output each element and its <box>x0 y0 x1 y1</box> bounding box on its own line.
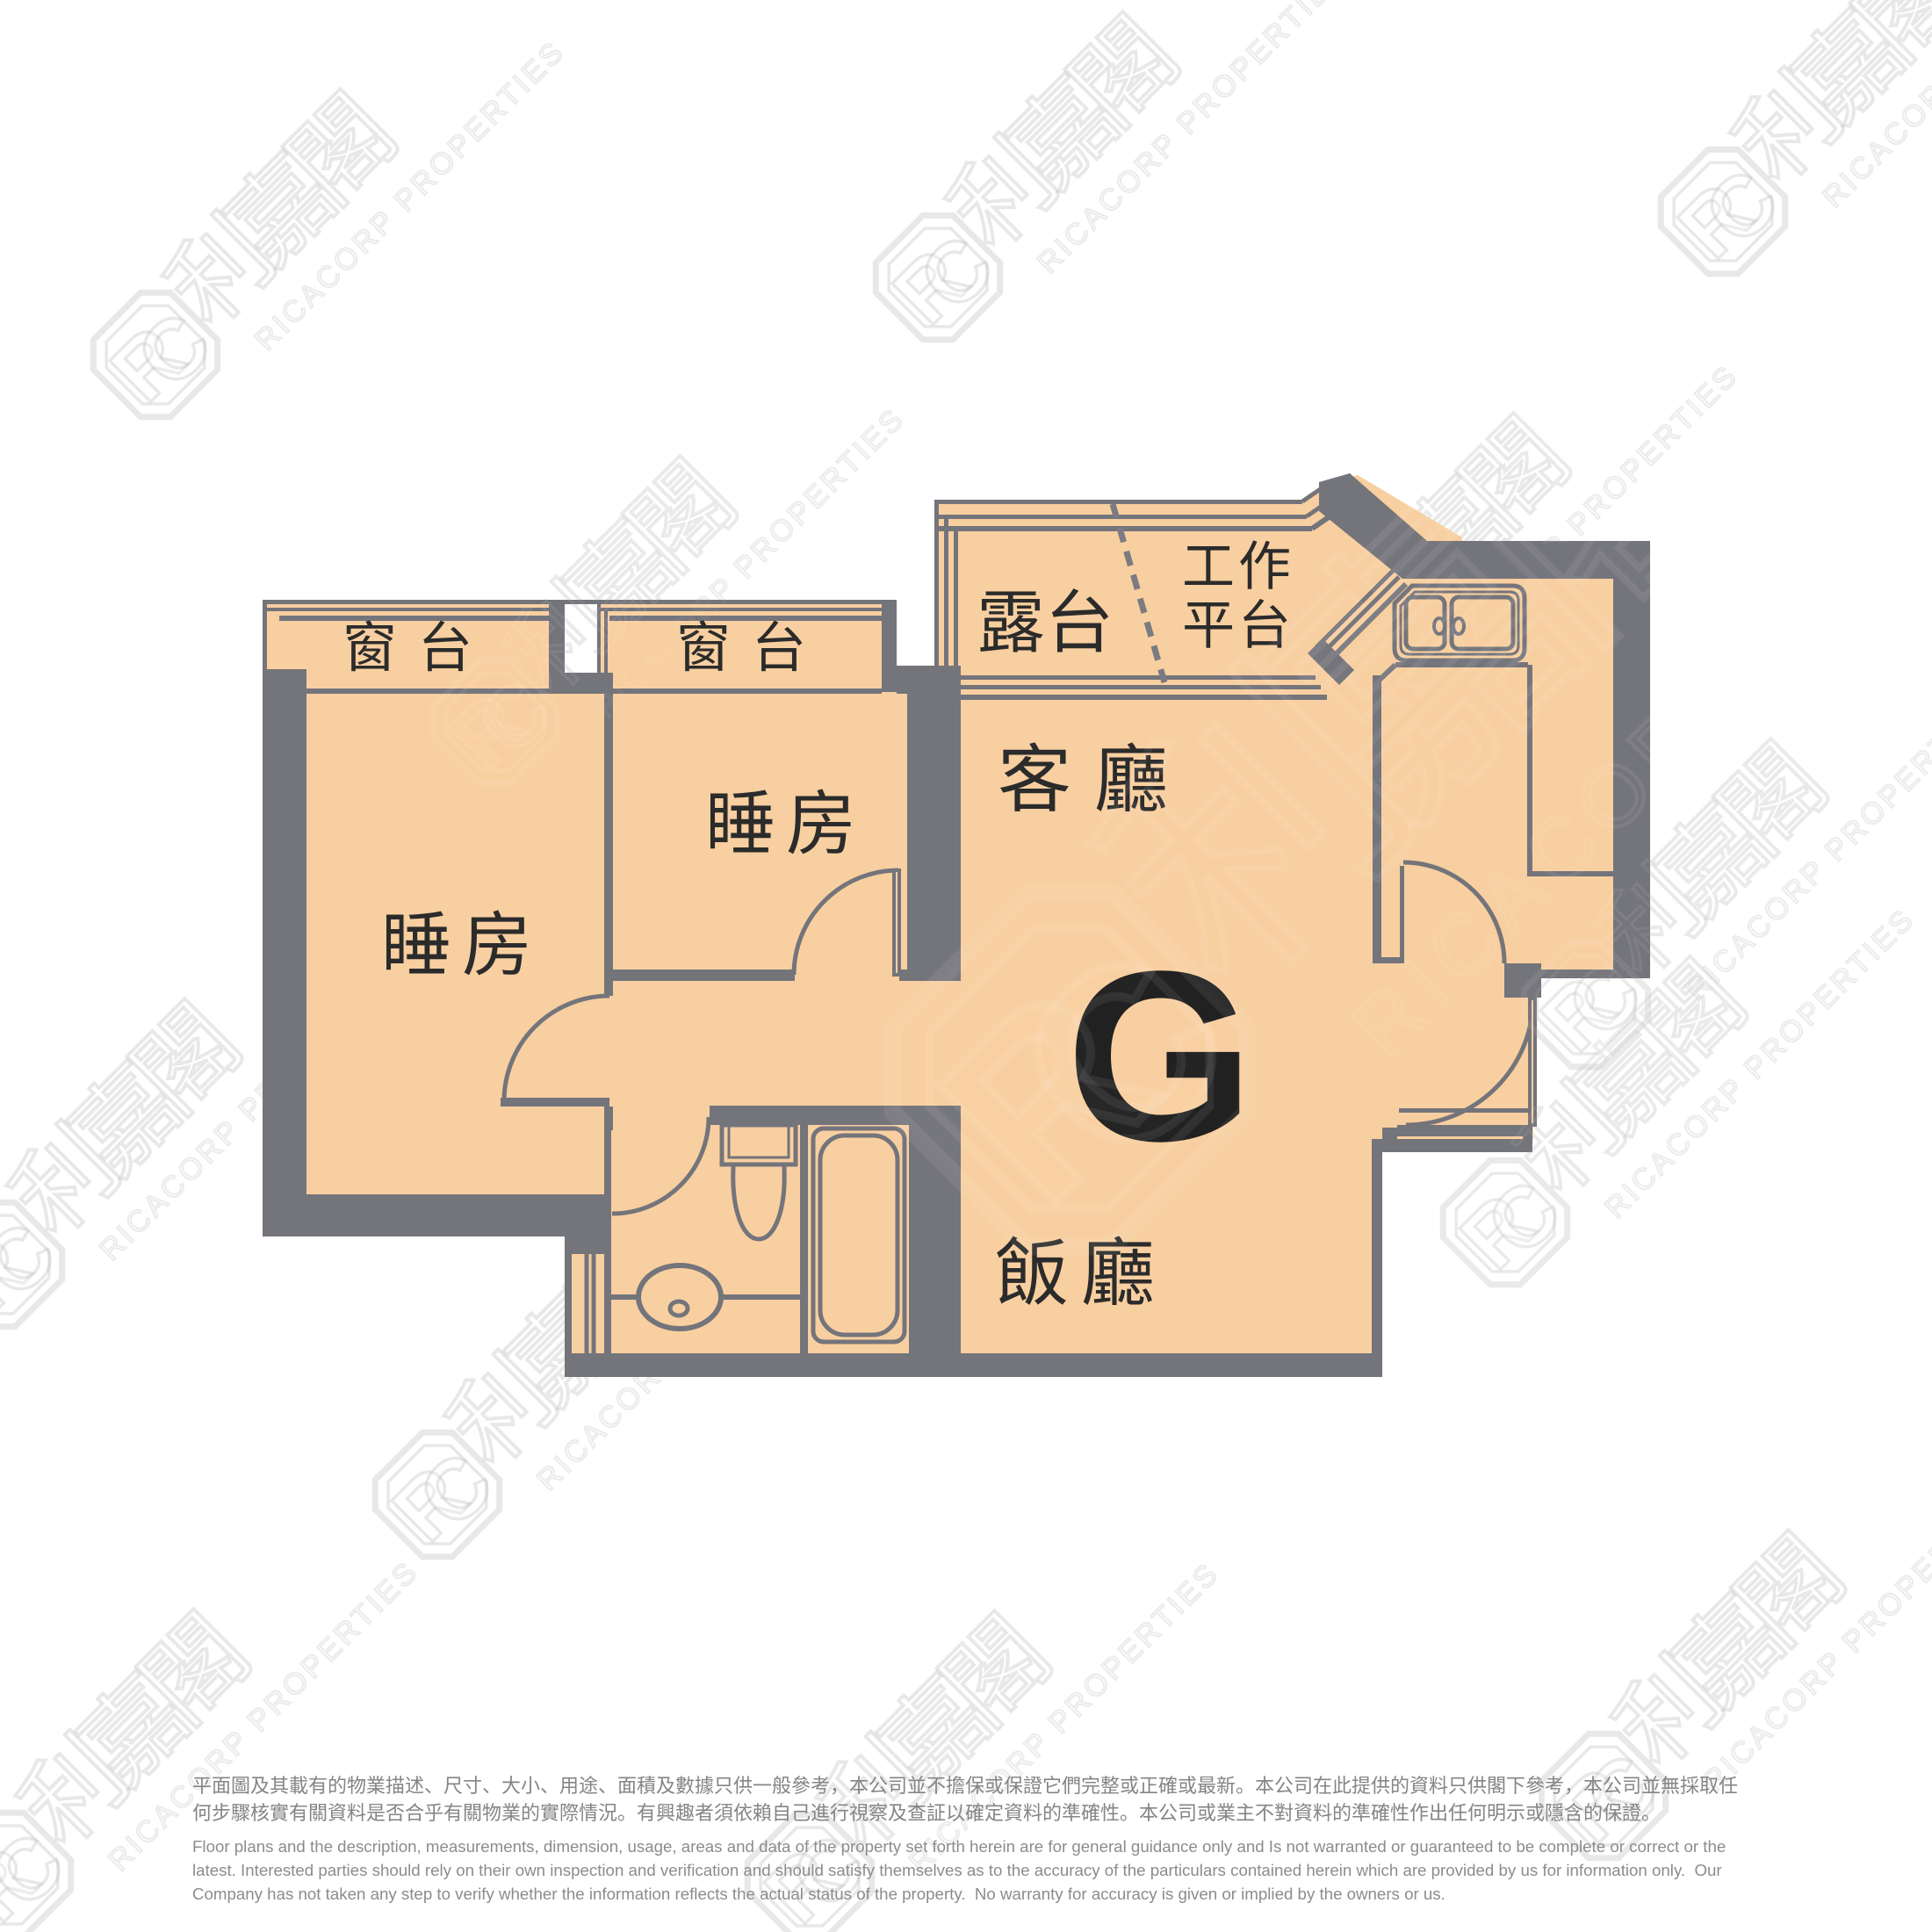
svg-text:露台: 露台 <box>977 584 1114 661</box>
svg-text:睡房: 睡房 <box>381 906 543 984</box>
svg-text:睡房: 睡房 <box>705 785 867 863</box>
